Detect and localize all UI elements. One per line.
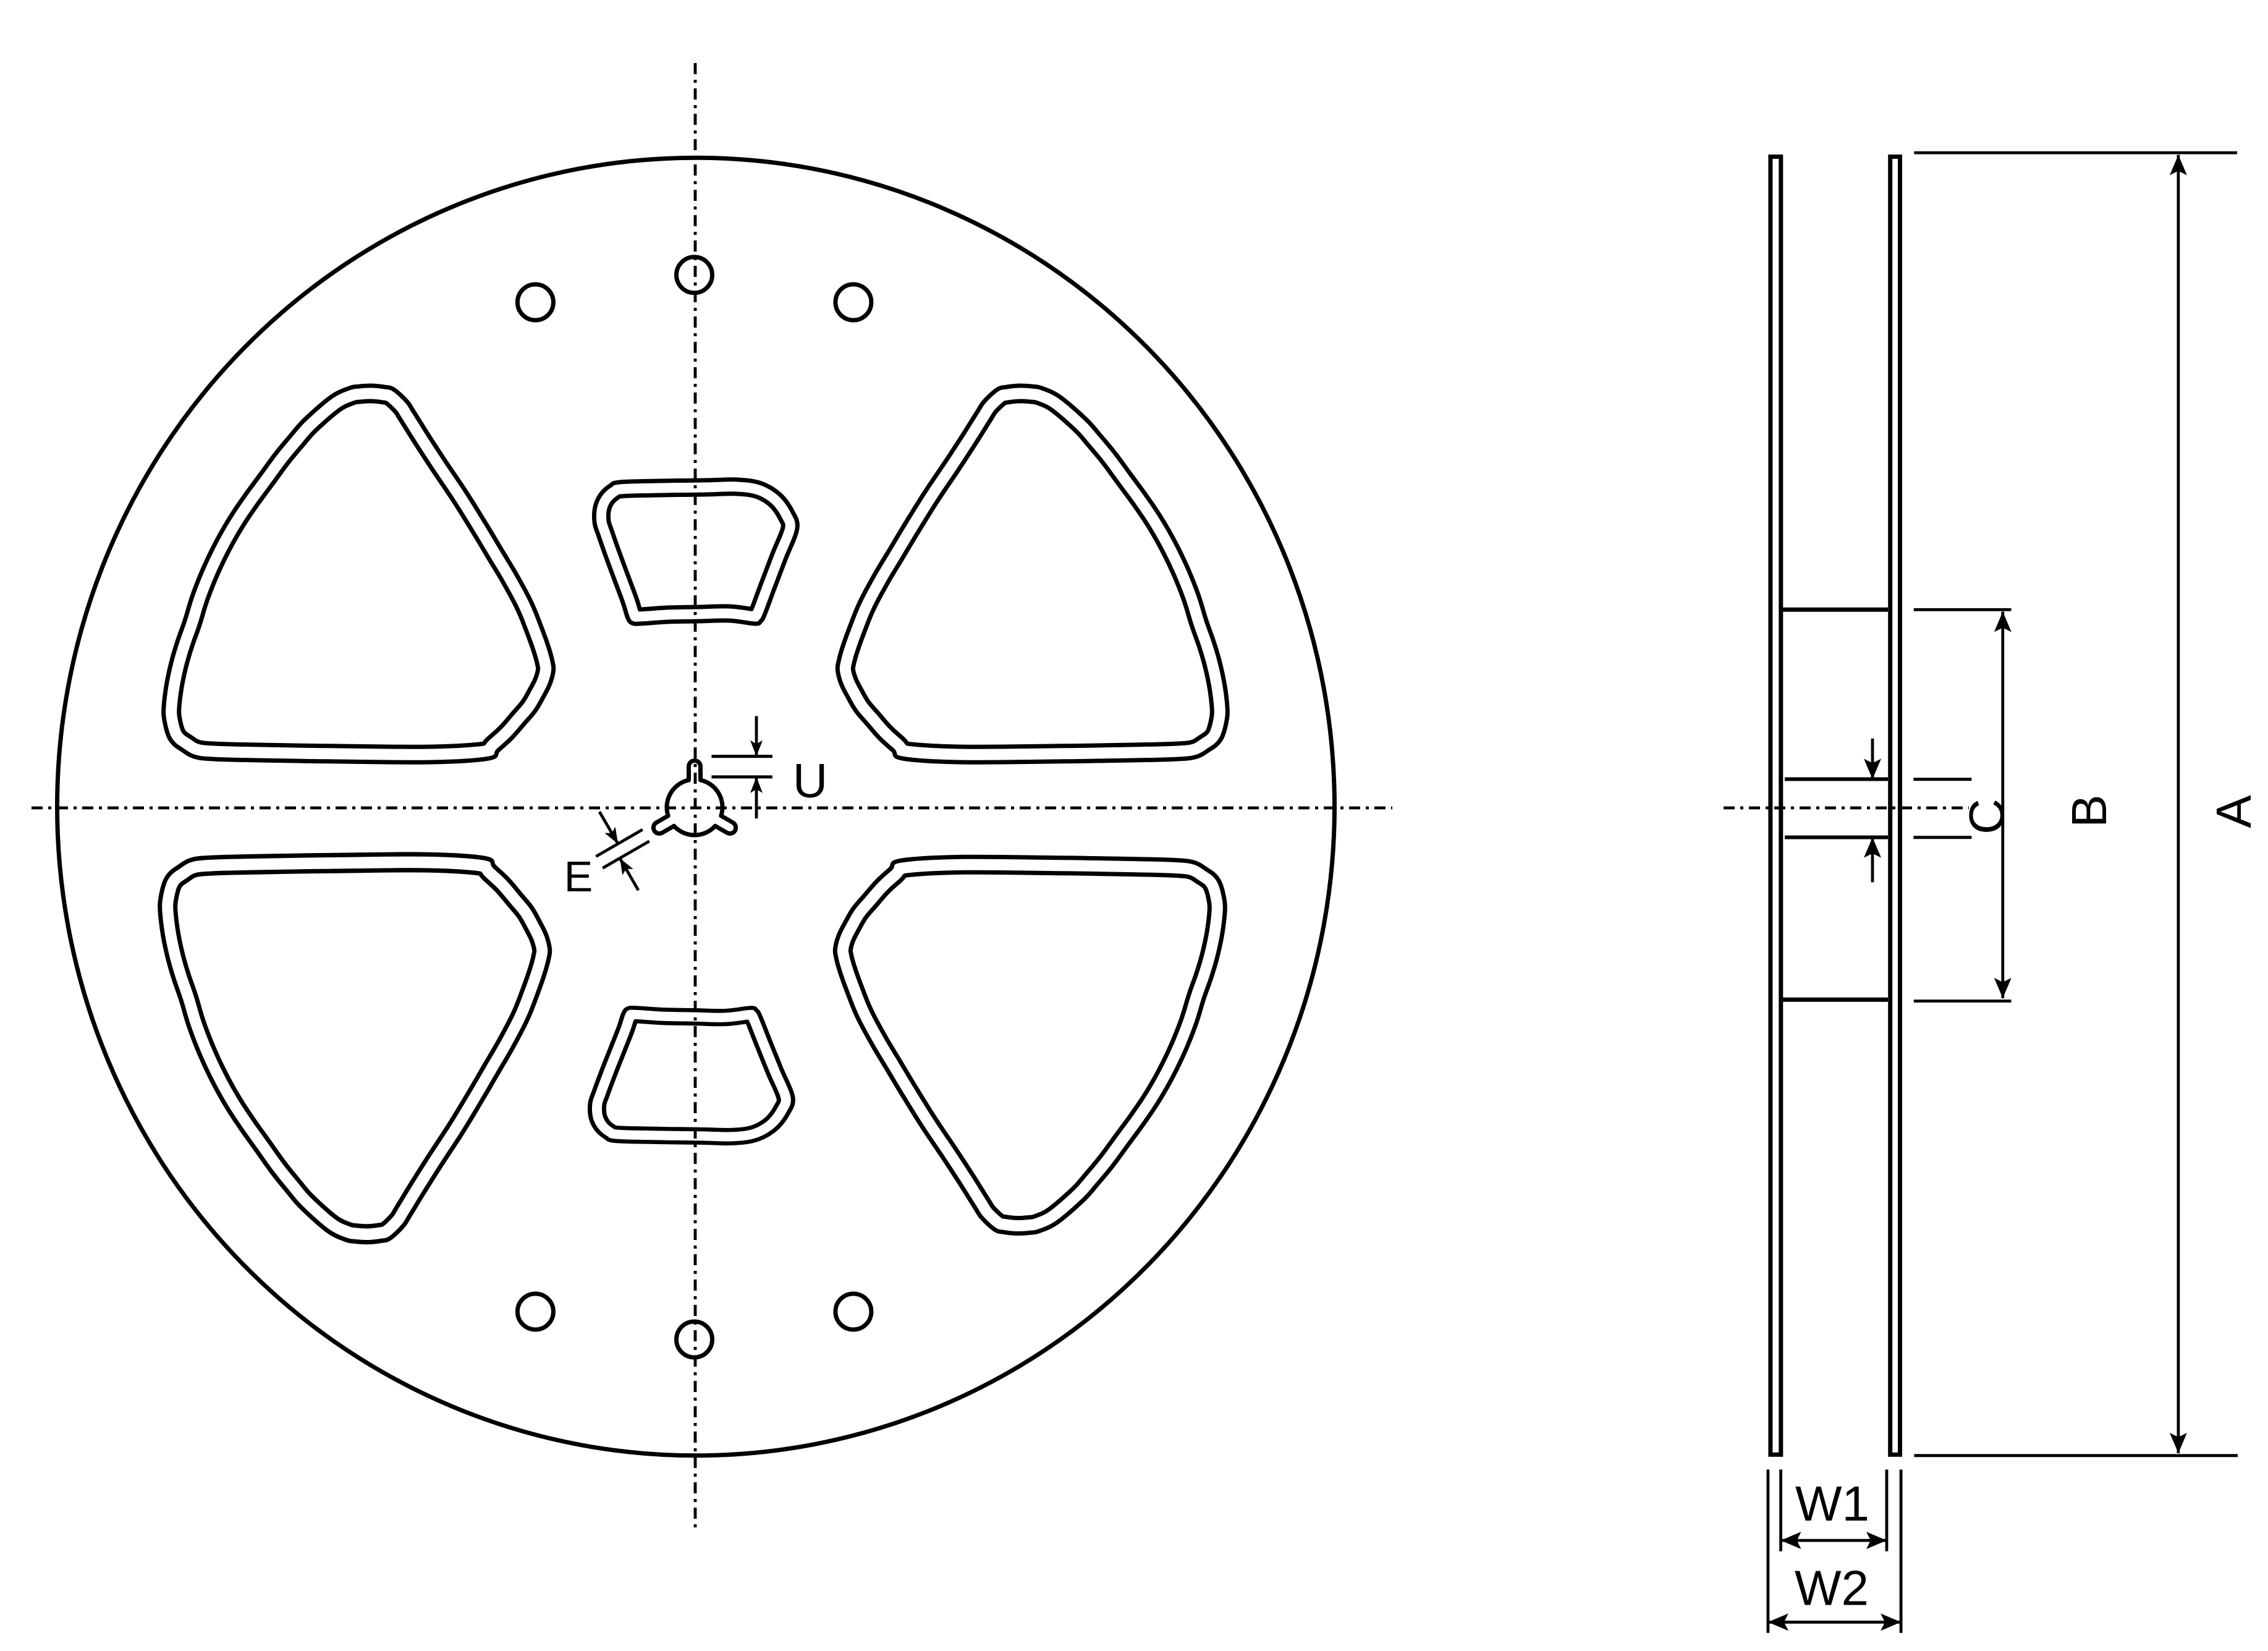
svg-text:E: E bbox=[564, 852, 593, 901]
svg-text:W1: W1 bbox=[1795, 1476, 1869, 1531]
svg-text:C: C bbox=[1959, 799, 2014, 834]
svg-text:U: U bbox=[793, 753, 827, 808]
svg-text:W2: W2 bbox=[1795, 1560, 1869, 1615]
svg-text:B: B bbox=[2062, 794, 2117, 827]
svg-text:A: A bbox=[2206, 795, 2261, 828]
